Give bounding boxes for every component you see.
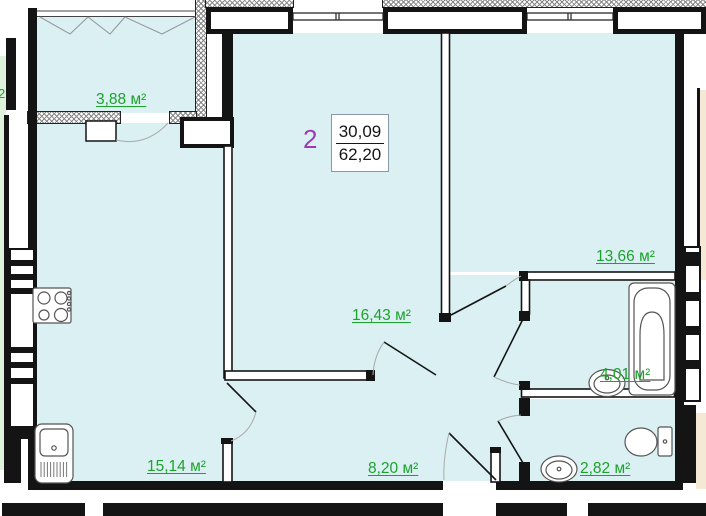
bathroom-door-leaf [494, 319, 523, 377]
doors [86, 121, 523, 480]
toilet-icon [625, 427, 672, 456]
label-kitchen-area: 15,14 м² [147, 458, 206, 476]
bedroom-door-arc [506, 276, 521, 286]
partition-kitchen-living [224, 146, 232, 378]
entry-door-leaf [449, 433, 496, 480]
balcony-door-leaf [86, 121, 116, 141]
summary-rooms-count: 2 [303, 124, 317, 155]
stove-icon [33, 288, 71, 323]
label-bathroom-area: 4,01 м² [600, 366, 650, 384]
summary-living-area: 30,09 [336, 122, 385, 144]
balcony-window [37, 11, 196, 34]
kitchen-door-leaf [227, 383, 256, 412]
bedroom-window [527, 13, 613, 20]
partition-kitchen-door-stub [223, 441, 232, 482]
partition-living-bedroom [442, 33, 450, 314]
partition-bathroom-top [524, 272, 675, 280]
label-living-area: 16,43 м² [352, 307, 411, 325]
entry-door-arc [444, 433, 449, 480]
label-wc-area: 2,82 м² [580, 460, 630, 478]
floor-plan: 3,88 м² 15,14 м² 16,43 м² 13,66 м² 4,01 … [0, 0, 706, 516]
wc-door-leaf [498, 421, 523, 463]
kitchen-door-arc [231, 412, 256, 441]
kitchen-sink-icon [35, 424, 73, 483]
summary-total-area: 62,20 [339, 144, 382, 165]
label-neighbor-fragment: 2 [0, 86, 5, 101]
partition-living-bottom [225, 371, 371, 380]
living-window [293, 13, 383, 20]
summary-area-box: 30,09 62,20 [331, 114, 389, 172]
living-door-leaf [384, 342, 436, 375]
wc-sink-icon [541, 456, 577, 482]
bathroom-door-arc [494, 377, 520, 385]
label-balcony-area: 3,88 м² [96, 91, 146, 109]
label-hallway-area: 8,20 м² [368, 460, 418, 478]
bedroom-door-leaf [451, 286, 506, 315]
partition-bathroom-left [522, 280, 530, 314]
wc-door-arc [498, 415, 521, 421]
balcony-door-arc [116, 123, 168, 142]
label-bedroom-area: 13,66 м² [596, 248, 655, 266]
